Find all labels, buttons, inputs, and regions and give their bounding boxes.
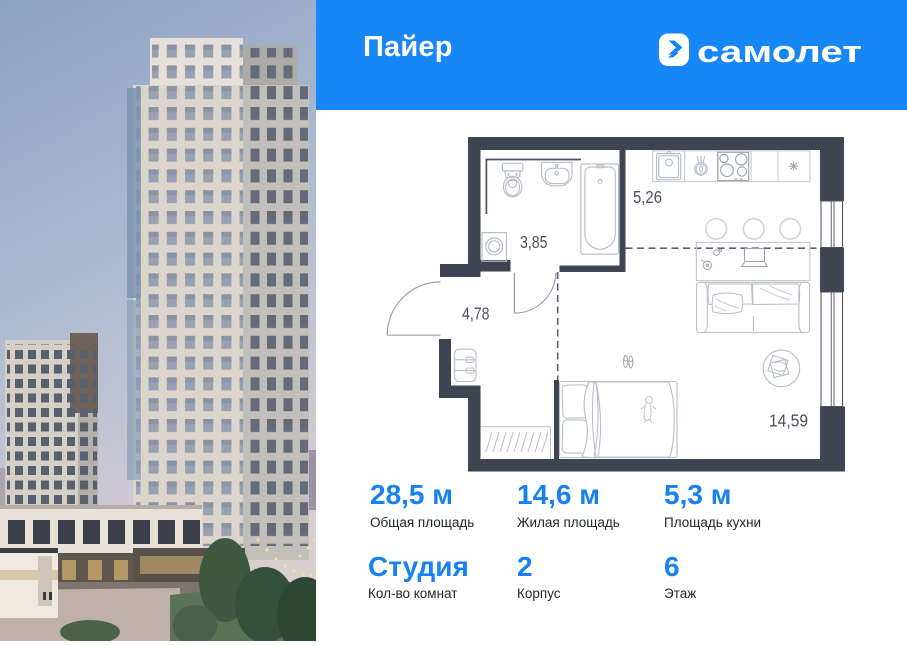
svg-text:самолет: самолет: [697, 34, 862, 69]
svg-text:3,85: 3,85: [520, 232, 548, 252]
svg-text:4,78: 4,78: [462, 304, 490, 324]
svg-text:5,26: 5,26: [633, 187, 662, 207]
svg-text:14,59: 14,59: [769, 411, 808, 431]
